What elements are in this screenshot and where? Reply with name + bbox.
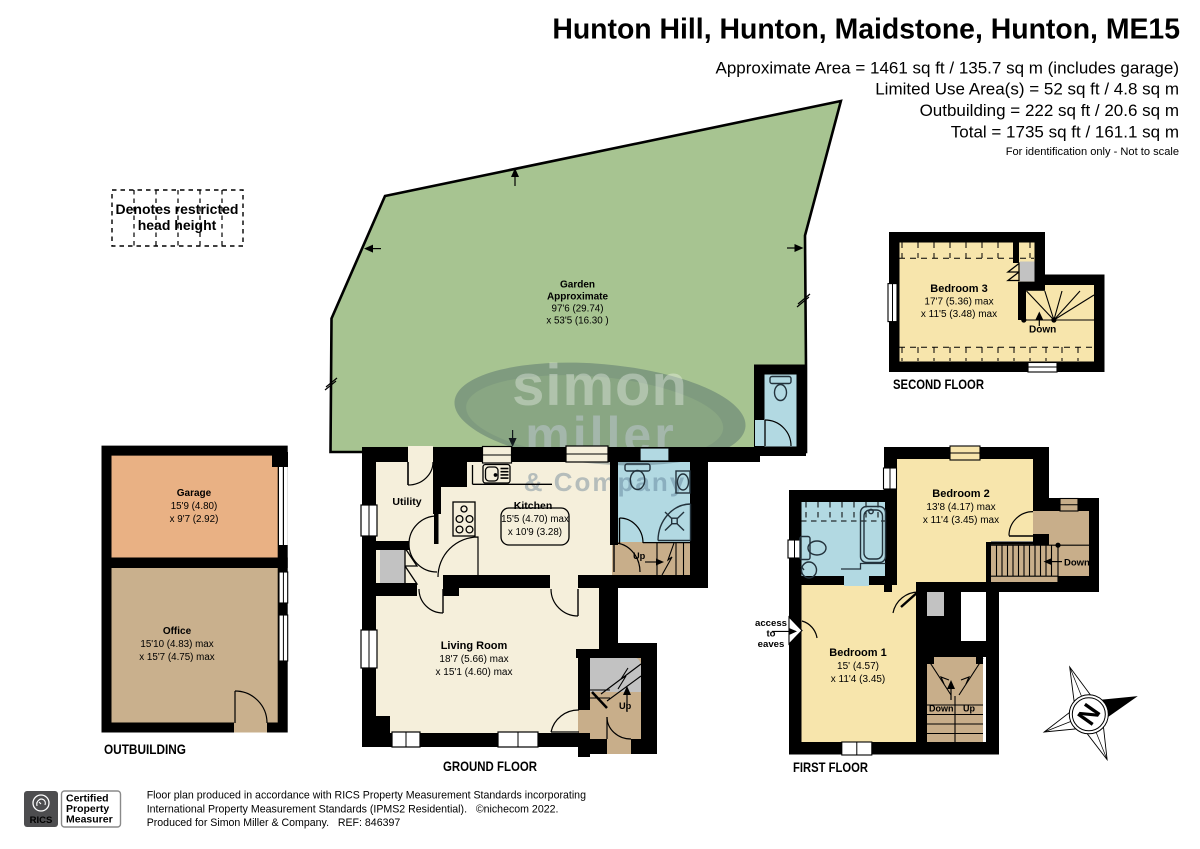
svg-text:Produced for Simon Miller & Co: Produced for Simon Miller & Company. REF… <box>147 817 401 829</box>
svg-text:Up: Up <box>619 701 632 711</box>
svg-text:Utility: Utility <box>392 496 421 508</box>
svg-text:Bedroom 1: Bedroom 1 <box>829 647 886 659</box>
svg-text:Up: Up <box>633 551 646 561</box>
svg-text:RICS: RICS <box>30 815 53 826</box>
svg-text:to: to <box>766 629 775 640</box>
svg-text:Outbuilding = 222 sq ft / 20.6: Outbuilding = 222 sq ft / 20.6 sq m <box>920 101 1179 120</box>
svg-text:Total = 1735 sq ft / 161.1 sq: Total = 1735 sq ft / 161.1 sq m <box>951 123 1179 142</box>
svg-text:head height: head height <box>138 217 217 233</box>
svg-text:x 9'7 (2.92): x 9'7 (2.92) <box>170 514 219 525</box>
svg-text:x 15'7 (4.75) max: x 15'7 (4.75) max <box>139 652 214 663</box>
svg-text:x 15'1 (4.60) max: x 15'1 (4.60) max <box>436 667 513 678</box>
svg-text:GROUND FLOOR: GROUND FLOOR <box>443 758 537 774</box>
svg-text:18'7 (5.66) max: 18'7 (5.66) max <box>439 654 508 665</box>
svg-text:Approximate: Approximate <box>547 292 609 303</box>
svg-text:15' (4.57): 15' (4.57) <box>837 661 879 672</box>
svg-text:Floor plan produced in accorda: Floor plan produced in accordance with R… <box>147 790 586 802</box>
svg-text:Down: Down <box>1064 558 1090 569</box>
svg-text:Kitchen: Kitchen <box>514 500 553 512</box>
svg-text:& Company: & Company <box>524 467 686 497</box>
svg-text:13'8 (4.17) max: 13'8 (4.17) max <box>926 502 995 513</box>
svg-text:access: access <box>755 618 787 629</box>
svg-text:Bedroom 3: Bedroom 3 <box>930 283 987 295</box>
svg-text:SECOND FLOOR: SECOND FLOOR <box>893 376 984 392</box>
svg-text:x 11'4 (3.45) max: x 11'4 (3.45) max <box>923 515 999 526</box>
svg-text:Measurer: Measurer <box>66 814 113 826</box>
svg-text:Living Room: Living Room <box>441 640 508 652</box>
svg-text:Office: Office <box>163 626 192 637</box>
svg-text:x 11'4 (3.45): x 11'4 (3.45) <box>831 674 886 685</box>
svg-text:For identification only - Not: For identification only - Not to scale <box>1006 146 1179 158</box>
svg-text:Limited Use Area(s) = 52 sq ft: Limited Use Area(s) = 52 sq ft / 4.8 sq … <box>875 80 1179 99</box>
svg-text:Hunton Hill, Hunton, Maidstone: Hunton Hill, Hunton, Maidstone, Hunton, … <box>552 14 1180 46</box>
svg-text:17'7 (5.36) max: 17'7 (5.36) max <box>924 297 993 308</box>
svg-text:OUTBUILDING: OUTBUILDING <box>104 741 186 757</box>
svg-text:x 10'9 (3.28): x 10'9 (3.28) <box>508 527 562 538</box>
svg-text:97'6 (29.74): 97'6 (29.74) <box>552 304 604 315</box>
svg-text:Denotes restricted: Denotes restricted <box>116 201 239 217</box>
svg-text:Down: Down <box>929 704 954 714</box>
svg-text:Garden: Garden <box>560 280 595 291</box>
svg-text:15'9 (4.80): 15'9 (4.80) <box>171 501 218 512</box>
svg-text:Garage: Garage <box>177 488 212 499</box>
svg-text:International Property Measure: International Property Measurement Stand… <box>147 803 559 815</box>
svg-text:Up: Up <box>963 704 975 714</box>
svg-text:x 53'5 (16.30 ): x 53'5 (16.30 ) <box>546 316 608 327</box>
svg-text:Approximate Area = 1461 sq ft: Approximate Area = 1461 sq ft / 135.7 sq… <box>715 59 1179 78</box>
svg-text:15'10 (4.83) max: 15'10 (4.83) max <box>140 639 213 650</box>
svg-text:x 11'5 (3.48) max: x 11'5 (3.48) max <box>921 309 997 320</box>
svg-text:Bedroom 2: Bedroom 2 <box>932 488 989 500</box>
svg-text:FIRST FLOOR: FIRST FLOOR <box>793 759 868 775</box>
svg-text:15'5 (4.70) max: 15'5 (4.70) max <box>501 514 569 525</box>
svg-text:eaves: eaves <box>758 639 785 650</box>
svg-text:Down: Down <box>1029 325 1056 336</box>
